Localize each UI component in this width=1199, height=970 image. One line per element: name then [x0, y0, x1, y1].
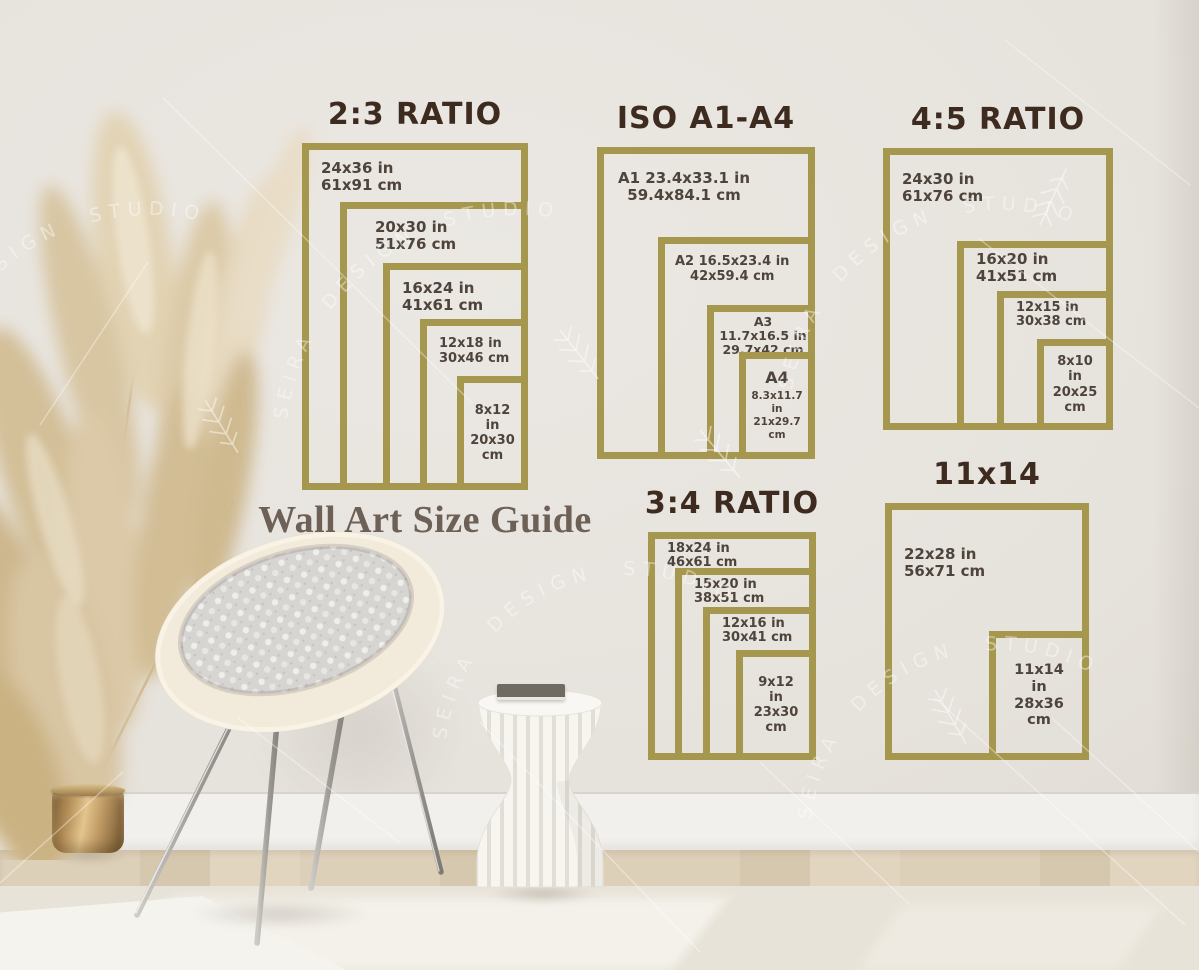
size-label: 8x12 in 20x30 cm [469, 403, 517, 463]
size-cm: 20x30 cm [469, 433, 517, 463]
size-cm: 51x76 cm [375, 236, 456, 253]
size-cm: 23x30 cm [752, 705, 800, 735]
size-label: 20x30 in 51x76 cm [375, 219, 456, 254]
frame-11x14: 11x14 in 28x36 cm [989, 631, 1089, 760]
size-cm: 56x71 cm [904, 563, 985, 580]
size-label: 24x36 in 61x91 cm [321, 160, 402, 195]
frame-8x10: 8x10 in 20x25 cm [1037, 339, 1113, 430]
size-label: A2 16.5x23.4 in 42x59.4 cm [675, 254, 789, 284]
size-in: A2 16.5x23.4 in [675, 254, 789, 269]
size-label: A3 11.7x16.5 in 29.7x42 cm [718, 315, 808, 356]
size-cm: 28x36 cm [1009, 696, 1069, 730]
group-title: ISO A1-A4 [617, 101, 795, 136]
chair-shell [150, 520, 460, 750]
size-in: 11x14 in [1009, 662, 1069, 696]
size-cm: 38x51 cm [694, 592, 764, 606]
size-cm: 59.4x84.1 cm [618, 187, 750, 204]
size-label: 15x20 in 38x51 cm [694, 578, 764, 607]
size-in: 15x20 in [694, 578, 764, 592]
size-cm: 30x41 cm [722, 631, 792, 645]
size-in: 8x10 in [1051, 354, 1099, 384]
group-title: 3:4 RATIO [645, 486, 819, 521]
size-in: 22x28 in [904, 546, 985, 563]
size-cm: 30x38 cm [1016, 315, 1086, 329]
size-cm: 41x61 cm [402, 297, 483, 314]
size-in: A3 11.7x16.5 in [718, 315, 808, 343]
size-in: 9x12 in [752, 675, 800, 705]
size-in: 12x18 in [439, 336, 509, 351]
group-title: 4:5 RATIO [911, 102, 1085, 137]
size-label: 11x14 in 28x36 cm [1009, 662, 1069, 729]
poster-caption: Wall Art Size Guide [228, 498, 622, 542]
size-name: A4 [746, 369, 808, 388]
wall-corner-shading [1153, 0, 1199, 810]
size-cm: 21x29.7 cm [746, 416, 808, 442]
size-in: 16x20 in [976, 251, 1057, 268]
group-title: 2:3 RATIO [328, 97, 502, 132]
frame-9x12: 9x12 in 23x30 cm [736, 650, 816, 760]
size-in: 16x24 in [402, 280, 483, 297]
room-scene: 2:3 RATIO 24x36 in 61x91 cm 20x30 in 51x… [0, 0, 1199, 970]
size-label: 12x16 in 30x41 cm [722, 617, 792, 646]
side-table [465, 682, 615, 907]
size-label: 16x20 in 41x51 cm [976, 251, 1057, 284]
size-in: 20x30 in [375, 219, 456, 236]
size-label: 24x30 in 61x76 cm [902, 171, 983, 206]
size-guide-2-3-ratio: 2:3 RATIO 24x36 in 61x91 cm 20x30 in 51x… [302, 143, 528, 490]
frame-a4: A4 8.3x11.7 in 21x29.7 cm [739, 352, 815, 459]
size-label: 16x24 in 41x61 cm [402, 280, 483, 315]
size-label: A4 8.3x11.7 in 21x29.7 cm [746, 369, 808, 442]
size-cm: 20x25 cm [1051, 385, 1099, 415]
group-title: 11x14 [933, 457, 1041, 492]
size-cm: 61x76 cm [902, 188, 983, 205]
size-in: 12x16 in [722, 617, 792, 631]
size-in: 24x30 in [902, 171, 983, 188]
size-guide-3-4-ratio: 3:4 RATIO 18x24 in 46x61 cm 15x20 in 38x… [648, 532, 816, 760]
size-label: 12x18 in 30x46 cm [439, 336, 509, 366]
size-label: 12x15 in 30x38 cm [1016, 301, 1086, 330]
size-cm: 30x46 cm [439, 351, 509, 366]
book [497, 684, 565, 700]
size-label: 9x12 in 23x30 cm [752, 675, 800, 735]
size-label: 22x28 in 56x71 cm [904, 546, 985, 581]
size-in: 8.3x11.7 in [746, 390, 808, 416]
size-in: 8x12 in [469, 403, 517, 433]
size-label: 18x24 in 46x61 cm [667, 542, 737, 571]
size-in: 18x24 in [667, 542, 737, 556]
size-guide-iso-a1-a4: ISO A1-A4 A1 23.4x33.1 in 59.4x84.1 cm A… [597, 147, 815, 459]
size-label: 8x10 in 20x25 cm [1051, 354, 1099, 414]
size-in: A1 23.4x33.1 in [618, 170, 750, 187]
size-guide-4-5-ratio: 4:5 RATIO 24x30 in 61x76 cm 16x20 in 41x… [883, 148, 1113, 430]
size-cm: 61x91 cm [321, 177, 402, 194]
size-in: 24x36 in [321, 160, 402, 177]
size-in: 12x15 in [1016, 301, 1086, 315]
rug-light-patch [858, 905, 1162, 970]
frame-8x12: 8x12 in 20x30 cm [457, 376, 528, 490]
size-cm: 41x51 cm [976, 268, 1057, 285]
size-cm: 42x59.4 cm [675, 269, 789, 284]
size-label: A1 23.4x33.1 in 59.4x84.1 cm [618, 170, 750, 205]
size-guide-11x14: 11x14 22x28 in 56x71 cm 11x14 in 28x36 c… [885, 503, 1089, 760]
